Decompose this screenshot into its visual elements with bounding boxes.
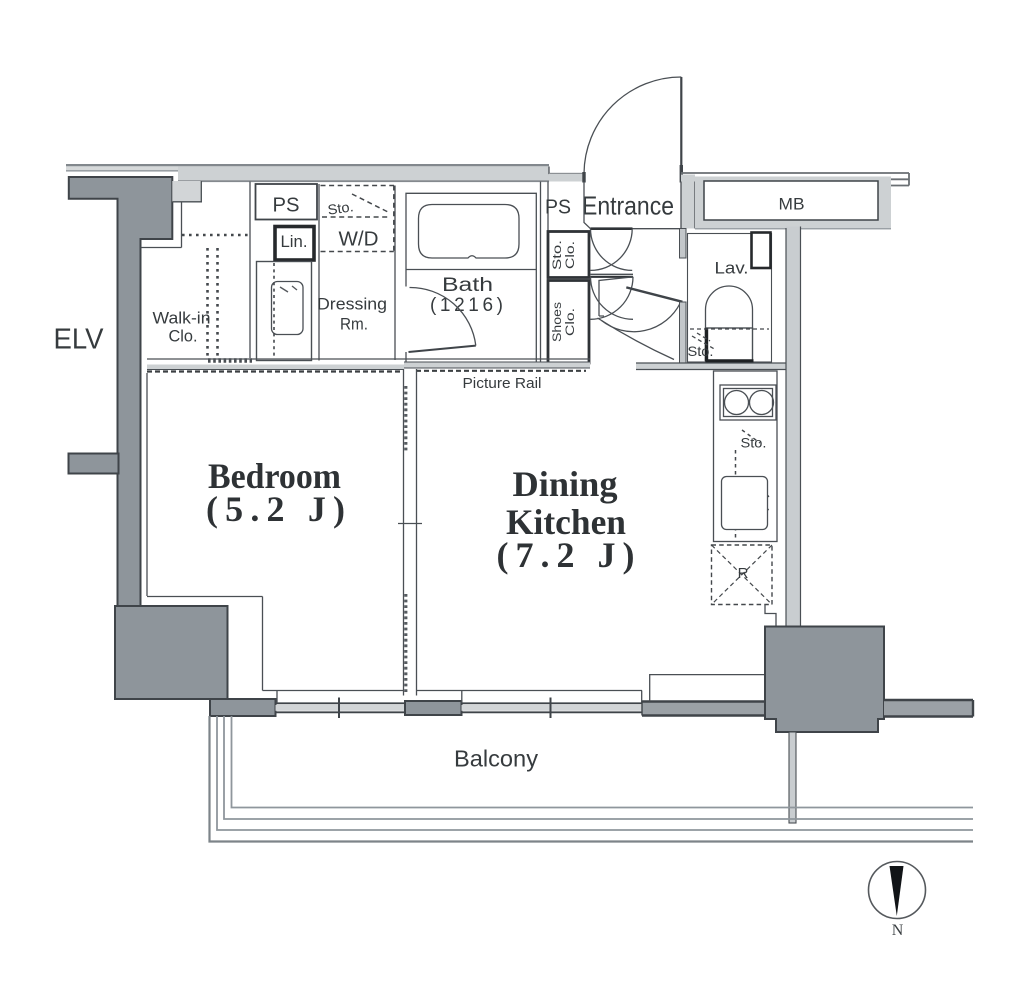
svg-text:Dressing: Dressing <box>317 295 387 314</box>
svg-text:Lav.: Lav. <box>715 260 749 278</box>
svg-text:Balcony: Balcony <box>454 746 538 772</box>
svg-text:Clo.: Clo. <box>565 308 577 336</box>
svg-text:R: R <box>738 565 749 582</box>
svg-text:Dining: Dining <box>513 464 618 504</box>
svg-text:PS: PS <box>273 195 300 217</box>
svg-text:Picture Rail: Picture Rail <box>463 375 542 392</box>
svg-text:(5.2 J): (5.2 J) <box>206 489 345 529</box>
svg-text:Sto.: Sto. <box>327 198 355 217</box>
svg-text:(7.2 J): (7.2 J) <box>497 535 635 575</box>
svg-text:(1216): (1216) <box>430 295 503 316</box>
svg-text:ELV: ELV <box>54 324 105 356</box>
svg-text:Lin.: Lin. <box>281 233 308 251</box>
svg-text:Bath: Bath <box>442 275 493 296</box>
svg-text:Clo.: Clo. <box>565 241 577 269</box>
svg-text:Sto.: Sto. <box>688 343 714 359</box>
svg-text:PS: PS <box>545 197 571 219</box>
svg-text:Clo.: Clo. <box>169 327 198 346</box>
svg-text:Shoes: Shoes <box>552 302 564 342</box>
svg-text:Rm.: Rm. <box>340 315 368 334</box>
svg-text:N: N <box>892 922 904 939</box>
svg-text:MB: MB <box>779 195 805 214</box>
svg-text:Sto.: Sto. <box>552 240 564 270</box>
svg-text:Walk-in: Walk-in <box>153 309 211 328</box>
svg-text:Entrance: Entrance <box>582 191 674 221</box>
svg-text:W/D: W/D <box>339 229 379 251</box>
svg-text:Sto.: Sto. <box>741 435 767 451</box>
